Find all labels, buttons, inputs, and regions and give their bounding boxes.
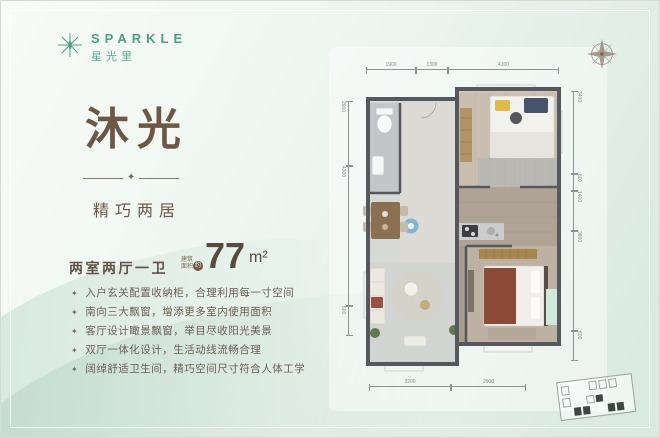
feature-item: ✦双厅一体化设计，生活动线流畅合理 bbox=[71, 342, 305, 361]
dim-right-1: 3400 bbox=[573, 91, 574, 174]
feature-item: ✦阔绰舒适卫生间，精巧空间尺寸符合人体工学 bbox=[71, 361, 305, 380]
unit-title: 沐光 bbox=[85, 93, 189, 157]
sparkle-starburst-icon bbox=[57, 32, 83, 63]
area-value: 77 bbox=[205, 235, 245, 277]
dim-bottom-1: 3200 bbox=[369, 386, 451, 387]
unit-subtitle: 精巧两居 bbox=[93, 197, 181, 221]
dim-top-3: 4100 bbox=[448, 69, 559, 70]
floor-plan-drawing bbox=[338, 56, 596, 401]
brand-logo: SPARKLE 星光里 bbox=[57, 31, 187, 64]
diamond-bullet-icon: ✦ bbox=[71, 365, 78, 374]
dim-left-2: 4300 bbox=[348, 166, 349, 306]
diamond-bullet-icon: ✦ bbox=[71, 346, 78, 355]
feature-item: ✦入户玄关配置收纳柜，合理利用每一寸空间 bbox=[71, 285, 305, 304]
brand-name-cn: 星光里 bbox=[91, 48, 187, 64]
feature-list: ✦入户玄关配置收纳柜，合理利用每一寸空间 ✦南向三大飘窗，增添更多室内使用面积 … bbox=[71, 285, 305, 380]
dim-top-2: 1300 bbox=[416, 69, 448, 70]
dim-right-5: 600 bbox=[573, 331, 574, 361]
diamond-bullet-icon: ✦ bbox=[71, 327, 78, 336]
dim-left-1: 2900 bbox=[348, 101, 349, 166]
compass-rose-icon bbox=[585, 37, 619, 76]
diamond-bullet-icon: ✦ bbox=[71, 289, 78, 298]
diamond-icon: ✦ bbox=[123, 173, 139, 183]
dim-bottom-2: 2900 bbox=[451, 386, 526, 387]
dim-right-3: 1400 bbox=[573, 191, 574, 231]
feature-item: ✦南向三大飘窗，增添更多室内使用面积 bbox=[71, 304, 305, 323]
divider: ✦ bbox=[83, 173, 179, 183]
floor-plan: 1900 1300 4100 3200 2900 2900 4300 600 3… bbox=[338, 56, 596, 401]
dim-top-1: 1900 bbox=[366, 69, 416, 70]
brand-text: SPARKLE 星光里 bbox=[91, 31, 187, 64]
spec-row: 两室两厅一卫 建筑 面积 约 77 m² bbox=[69, 241, 329, 287]
dim-right-2: 600 bbox=[573, 174, 574, 191]
approx-badge: 约 bbox=[193, 261, 203, 271]
area-unit: m² bbox=[249, 249, 268, 267]
layout-text: 两室两厅一卫 bbox=[69, 258, 168, 278]
area-label: 建筑 面积 bbox=[181, 257, 193, 271]
brand-name: SPARKLE bbox=[91, 31, 187, 46]
diamond-bullet-icon: ✦ bbox=[71, 308, 78, 317]
feature-item: ✦客厅设计瞰景飘窗，举目尽收阳光美景 bbox=[71, 323, 305, 342]
dim-right-4: 3800 bbox=[573, 231, 574, 331]
site-key-plan bbox=[554, 368, 640, 430]
poster: SPARKLE 星光里 沐光 ✦ 精巧两居 两室两厅一卫 建筑 面积 约 77 … bbox=[0, 0, 660, 438]
dim-left-3: 600 bbox=[348, 306, 349, 336]
